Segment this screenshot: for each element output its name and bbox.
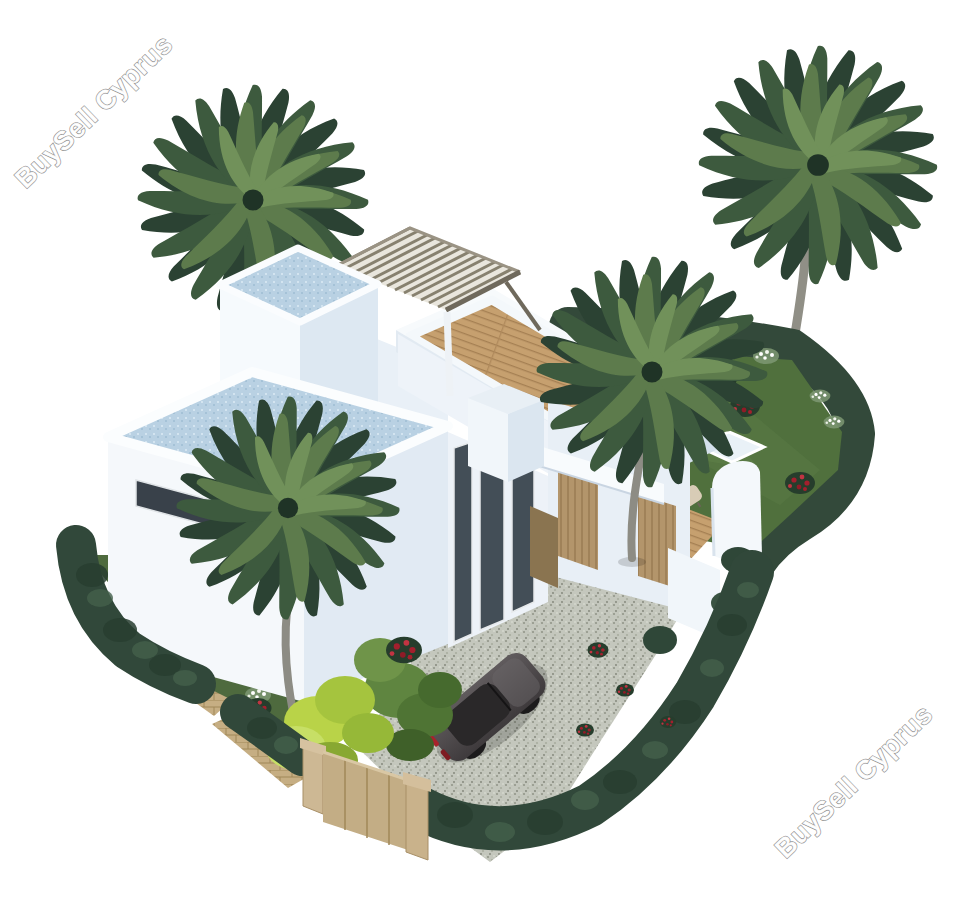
terrace-bulkhead — [468, 384, 544, 482]
entrance-door — [530, 506, 558, 588]
property-render-image: BuySell Cyprus BuySell Cyprus — [0, 0, 965, 900]
villa-render: BuySell Cyprus BuySell Cyprus — [0, 0, 965, 900]
curved-garden-wall — [712, 461, 762, 561]
wood-door-panel — [558, 470, 598, 570]
tall-window — [454, 442, 472, 642]
